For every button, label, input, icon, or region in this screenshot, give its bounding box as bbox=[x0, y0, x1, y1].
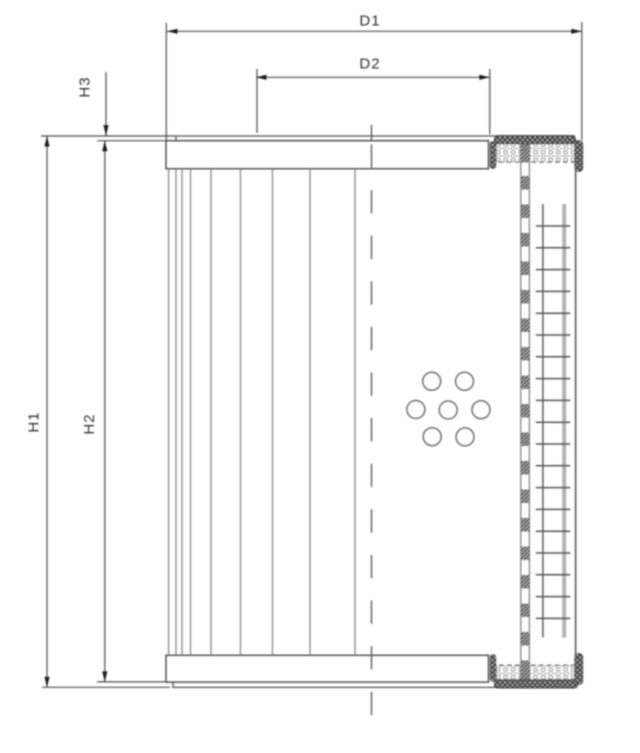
svg-text:H3: H3 bbox=[77, 76, 94, 97]
svg-text:H1: H1 bbox=[26, 411, 43, 432]
svg-text:D2: D2 bbox=[359, 56, 380, 73]
svg-text:H2: H2 bbox=[81, 413, 98, 434]
svg-text:D1: D1 bbox=[359, 13, 380, 30]
